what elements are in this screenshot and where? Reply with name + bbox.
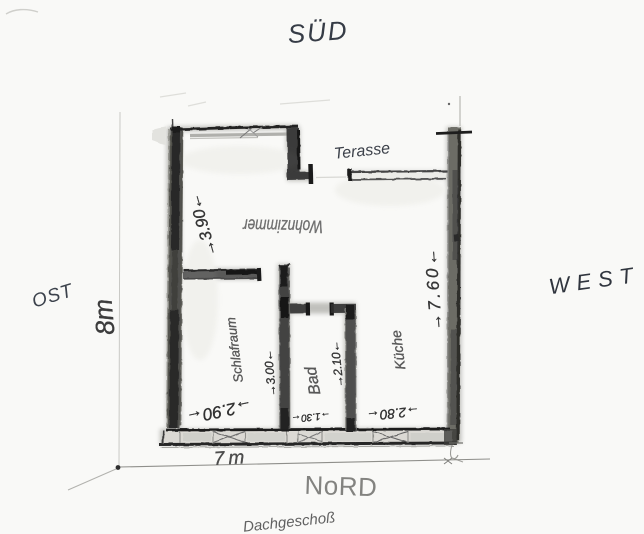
svg-text:8m: 8m <box>87 298 120 337</box>
svg-text:NoRD: NoRD <box>304 470 378 503</box>
svg-text:7m: 7m <box>213 447 248 470</box>
svg-text:Wohnzimmer: Wohnzimmer <box>242 215 323 236</box>
svg-text:SÜD: SÜD <box>287 15 350 49</box>
